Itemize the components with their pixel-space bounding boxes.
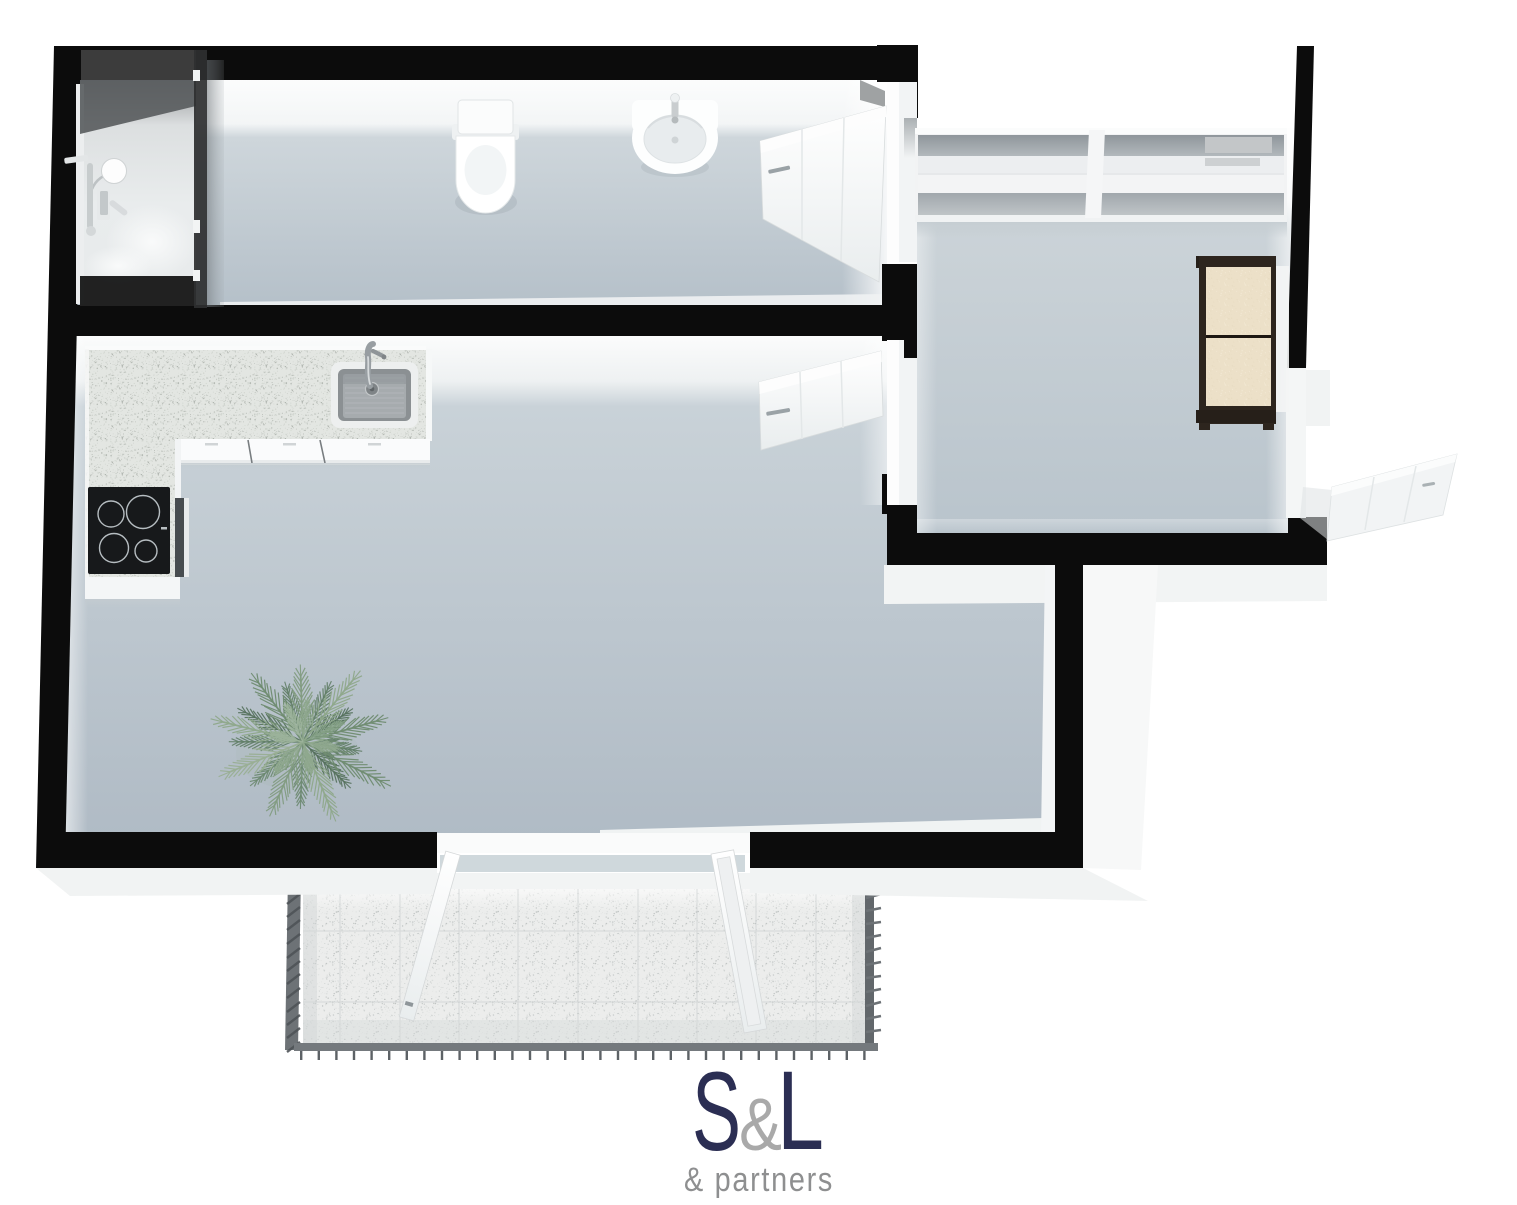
svg-text:& partners: & partners xyxy=(684,1161,834,1199)
svg-text:L: L xyxy=(777,1048,824,1173)
svg-text:S: S xyxy=(692,1049,741,1174)
svg-text:&: & xyxy=(739,1083,782,1166)
